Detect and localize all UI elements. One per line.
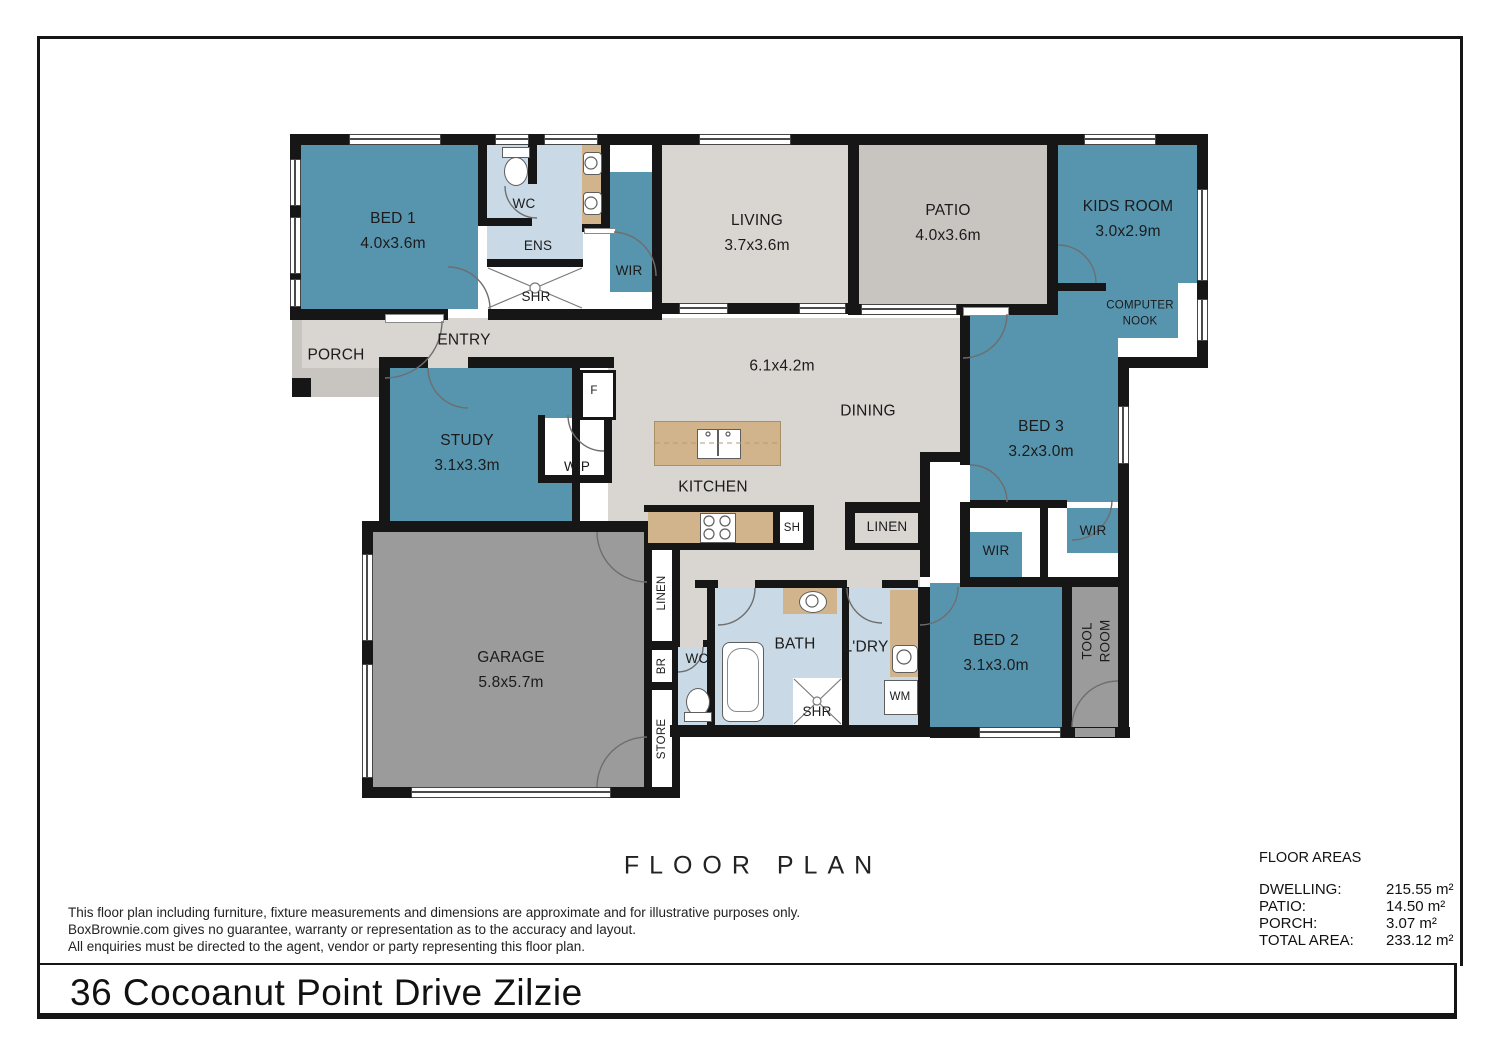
wall-study-left bbox=[379, 357, 390, 532]
window-wc-top bbox=[496, 135, 528, 144]
disclaimer-line: This floor plan including furniture, fix… bbox=[68, 905, 800, 920]
window-living-top bbox=[700, 135, 790, 144]
wall-wir-divider bbox=[1040, 508, 1048, 577]
window-ens-top bbox=[545, 135, 597, 144]
label-porch: PORCH bbox=[308, 344, 365, 369]
toilet-wc2-base bbox=[684, 712, 712, 722]
label-wir2: WIR bbox=[983, 540, 1010, 562]
label-bed2: BED 2 3.1x3.0m bbox=[963, 629, 1028, 679]
garage-door bbox=[412, 788, 610, 797]
slider-living-2 bbox=[800, 304, 845, 313]
window-garage-left-2 bbox=[363, 665, 372, 777]
wall-wing-bottom bbox=[1118, 357, 1208, 368]
address-bar: 36 Cocoanut Point Drive Zilzie bbox=[37, 963, 1457, 1019]
floor-areas-row-label: DWELLING: bbox=[1259, 881, 1342, 898]
label-wc2: WC bbox=[686, 648, 709, 670]
label-bath: BATH bbox=[775, 633, 816, 658]
wall-bed3-left-upper bbox=[960, 305, 970, 465]
label-entry: ENTRY bbox=[437, 329, 490, 354]
label-sh: SH bbox=[784, 519, 800, 537]
label-bed1: BED 1 4.0x3.6m bbox=[360, 207, 425, 257]
wall-tool-left bbox=[1062, 578, 1072, 727]
floor-areas-row-value: 233.12 m² bbox=[1386, 932, 1454, 949]
door-leaf-wir1 bbox=[584, 228, 616, 234]
nook-notch-right bbox=[1178, 283, 1197, 357]
label-linen-center: LINEN bbox=[867, 516, 908, 538]
wall-ldry-bed2 bbox=[918, 587, 930, 727]
ldry-tub bbox=[892, 645, 918, 673]
floor-plan-title: FLOOR PLAN bbox=[624, 852, 882, 881]
wall-living-patio bbox=[848, 134, 859, 307]
property-address: 36 Cocoanut Point Drive Zilzie bbox=[70, 972, 583, 1014]
window-bed1-left-2 bbox=[291, 218, 300, 273]
wall-bath-top-b bbox=[755, 580, 847, 588]
basin-ens-1 bbox=[583, 152, 602, 175]
stove bbox=[700, 513, 736, 543]
label-living: LIVING 3.7x3.6m bbox=[724, 209, 789, 259]
label-store: STORE bbox=[653, 719, 671, 759]
label-wc1: WC bbox=[513, 193, 536, 215]
island-sink bbox=[697, 429, 741, 459]
wall-bed1-ens bbox=[478, 134, 487, 226]
island-sink-divider bbox=[717, 430, 719, 456]
wall-garage-top bbox=[362, 521, 644, 532]
disclaimer-line: All enquiries must be directed to the ag… bbox=[68, 939, 585, 954]
window-bed3-right bbox=[1119, 407, 1128, 463]
label-linen-vert: LINEN bbox=[653, 576, 671, 611]
wall-ldry-top bbox=[882, 580, 918, 588]
floor-areas-row-label: TOTAL AREA: bbox=[1259, 932, 1354, 949]
wall-wir-top bbox=[970, 500, 1067, 508]
label-ens: ENS bbox=[524, 235, 552, 257]
wall-wir1-living bbox=[652, 134, 662, 320]
label-shr1: SHR bbox=[521, 286, 550, 308]
wall-wc1-v bbox=[528, 134, 537, 184]
wall-patio-wing bbox=[1047, 134, 1058, 315]
floor-areas-row-label: PATIO: bbox=[1259, 898, 1306, 915]
opening-toolroom bbox=[1075, 728, 1115, 737]
label-kids: KIDS ROOM 3.0x2.9m bbox=[1083, 195, 1174, 245]
wall-kitchen-front bbox=[644, 543, 780, 550]
label-dining-dim: 6.1x4.2m bbox=[749, 355, 814, 380]
window-garage-left-1 bbox=[363, 555, 372, 640]
porch-pillar bbox=[292, 378, 311, 397]
disclaimer-line: BoxBrownie.com gives no guarantee, warra… bbox=[68, 922, 636, 937]
wall-linen-top bbox=[845, 502, 928, 513]
window-bed1-left-3 bbox=[291, 280, 300, 306]
wall-hall-bath bbox=[707, 587, 715, 647]
wall-wc2-top bbox=[703, 640, 715, 647]
window-bed2-bottom bbox=[980, 728, 1060, 737]
wall-wc1-h bbox=[487, 218, 532, 226]
wall-kitchen-back bbox=[644, 505, 814, 512]
window-bed1-top bbox=[350, 135, 440, 144]
label-garage: GARAGE 5.8x5.7m bbox=[477, 646, 545, 696]
label-kitchen: KITCHEN bbox=[678, 476, 747, 501]
label-study: STUDY 3.1x3.3m bbox=[434, 429, 499, 479]
floor-areas-row-value: 215.55 m² bbox=[1386, 881, 1454, 898]
window-nook-right bbox=[1198, 300, 1207, 340]
label-dining: DINING bbox=[840, 400, 895, 425]
label-ldry: L'DRY bbox=[843, 636, 888, 661]
label-wir3: WIR bbox=[1080, 520, 1107, 542]
label-bed3: BED 3 3.2x3.0m bbox=[1008, 415, 1073, 465]
slider-patio bbox=[862, 305, 956, 314]
label-tool: TOOL ROOM bbox=[1078, 620, 1113, 663]
wall-wet-bottom bbox=[670, 725, 930, 737]
label-patio: PATIO 4.0x3.6m bbox=[915, 199, 980, 249]
floor-areas-row-label: PORCH: bbox=[1259, 915, 1317, 932]
label-shr2: SHR bbox=[802, 701, 831, 723]
door-leaf-patio bbox=[963, 307, 1009, 316]
wall-linen-bottom bbox=[845, 543, 928, 550]
slider-living-1 bbox=[680, 304, 727, 313]
toilet-ens-bowl bbox=[504, 157, 528, 186]
wall-study-top-b bbox=[468, 357, 614, 368]
wall-bed1-bottom-b bbox=[488, 309, 658, 320]
label-br: BR bbox=[653, 658, 671, 674]
wall-wip-right bbox=[604, 412, 612, 483]
floor-plan-sheet: BED 1 4.0x3.6m WC ENS WIR SHR LIVING 3.7… bbox=[0, 0, 1500, 1060]
floor-areas-heading: FLOOR AREAS bbox=[1259, 850, 1361, 866]
basin-ens-2 bbox=[583, 192, 602, 215]
bathtub-inner bbox=[727, 648, 759, 712]
window-kids-right bbox=[1198, 190, 1207, 280]
label-wir1: WIR bbox=[616, 260, 643, 282]
wall-kids-nook bbox=[1058, 283, 1106, 291]
label-wip: WIP bbox=[564, 456, 590, 478]
window-kids-top bbox=[1085, 135, 1155, 144]
floor-areas-row-value: 3.07 m² bbox=[1386, 915, 1437, 932]
wall-wir-bottom bbox=[960, 577, 1118, 587]
label-wm: WM bbox=[890, 688, 911, 706]
label-nook: COMPUTER NOOK bbox=[1106, 298, 1173, 329]
basin-bath bbox=[799, 591, 827, 613]
fridge-box bbox=[580, 370, 616, 420]
label-fridge: F bbox=[590, 382, 597, 400]
floor-areas-row-value: 14.50 m² bbox=[1386, 898, 1445, 915]
wall-shr1-top bbox=[487, 259, 583, 267]
wall-bed3-left-lower bbox=[960, 502, 970, 587]
door-leaf-entry bbox=[385, 314, 444, 323]
wall-vanity-v bbox=[601, 134, 610, 226]
wall-study-right bbox=[572, 368, 580, 521]
wall-wip-left bbox=[538, 415, 545, 483]
window-bed1-left-1 bbox=[291, 160, 300, 205]
hall-teal bbox=[970, 315, 1118, 360]
